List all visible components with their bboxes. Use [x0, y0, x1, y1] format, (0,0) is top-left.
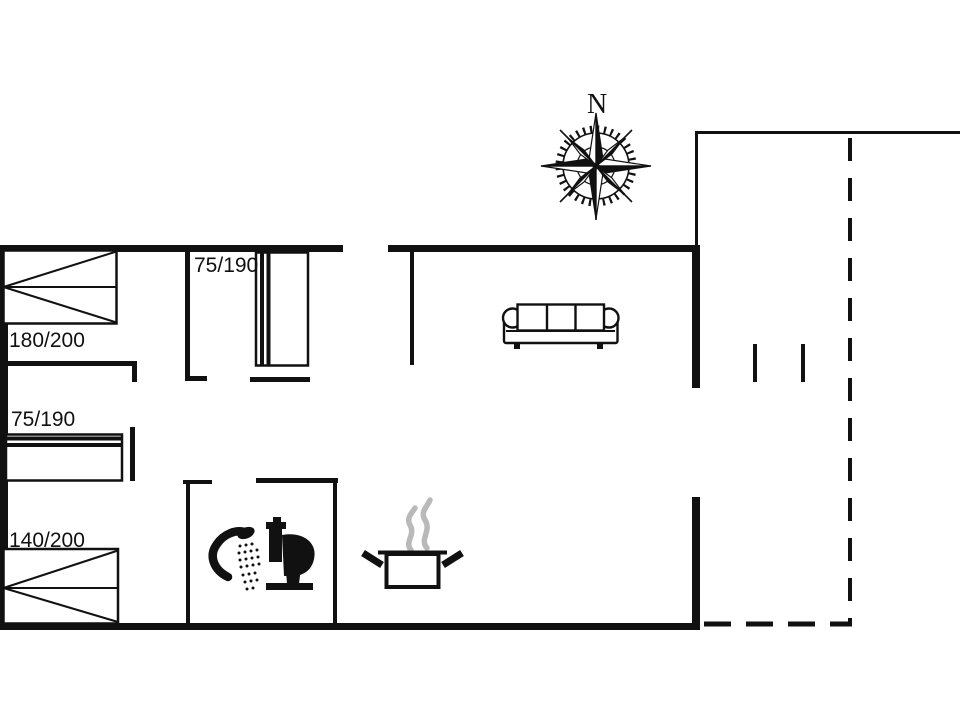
- bed-size-label: 140/200: [9, 529, 85, 552]
- terrace-post-tick: [753, 344, 757, 382]
- wall-bath-east: [333, 478, 337, 623]
- wall-east-lower: [692, 497, 700, 630]
- compass-north-label: N: [587, 89, 607, 120]
- steam-icon: [409, 500, 430, 550]
- floor-plan-canvas: 180/200 75/190 75/190 140/200: [0, 0, 960, 720]
- wall-bedroom2-south: [250, 377, 310, 382]
- terrace-post-tick: [801, 344, 805, 382]
- wall-door-tick: [132, 361, 137, 382]
- toilet-icon: [266, 517, 315, 590]
- roof-line-side: [695, 134, 698, 247]
- wall-bath-west: [186, 482, 190, 623]
- wall-east-upper: [692, 245, 700, 388]
- wall-bedroom1-east: [185, 252, 190, 378]
- terrace-outline: [695, 131, 960, 626]
- bed-size-label: 75/190: [194, 254, 258, 277]
- cooking-pot-icon: [363, 500, 462, 587]
- shower-spray-dots: [238, 543, 261, 591]
- wall-alcove-stub: [130, 427, 135, 481]
- single-bed-icon: [6, 435, 122, 481]
- bed-size-label: 180/200: [9, 329, 85, 352]
- wall-door-tick: [185, 376, 207, 381]
- bed-size-label: 75/190: [11, 408, 75, 431]
- compass-rose-icon: N: [541, 89, 651, 220]
- double-bed-icon: [4, 251, 117, 324]
- shower-icon: [213, 525, 261, 591]
- sofa-icon: [503, 305, 619, 350]
- wall-bath-north: [256, 478, 338, 483]
- single-bed-icon: [256, 253, 308, 366]
- wall-living-partition: [410, 252, 414, 365]
- compass-center-dot: [593, 163, 600, 170]
- double-bed-icon: [4, 549, 119, 624]
- roof-line-top: [695, 131, 960, 134]
- wall-north-east: [388, 245, 700, 252]
- floor-plan: 180/200 75/190 75/190 140/200: [0, 0, 960, 720]
- wall-bedroom1-south: [0, 361, 137, 366]
